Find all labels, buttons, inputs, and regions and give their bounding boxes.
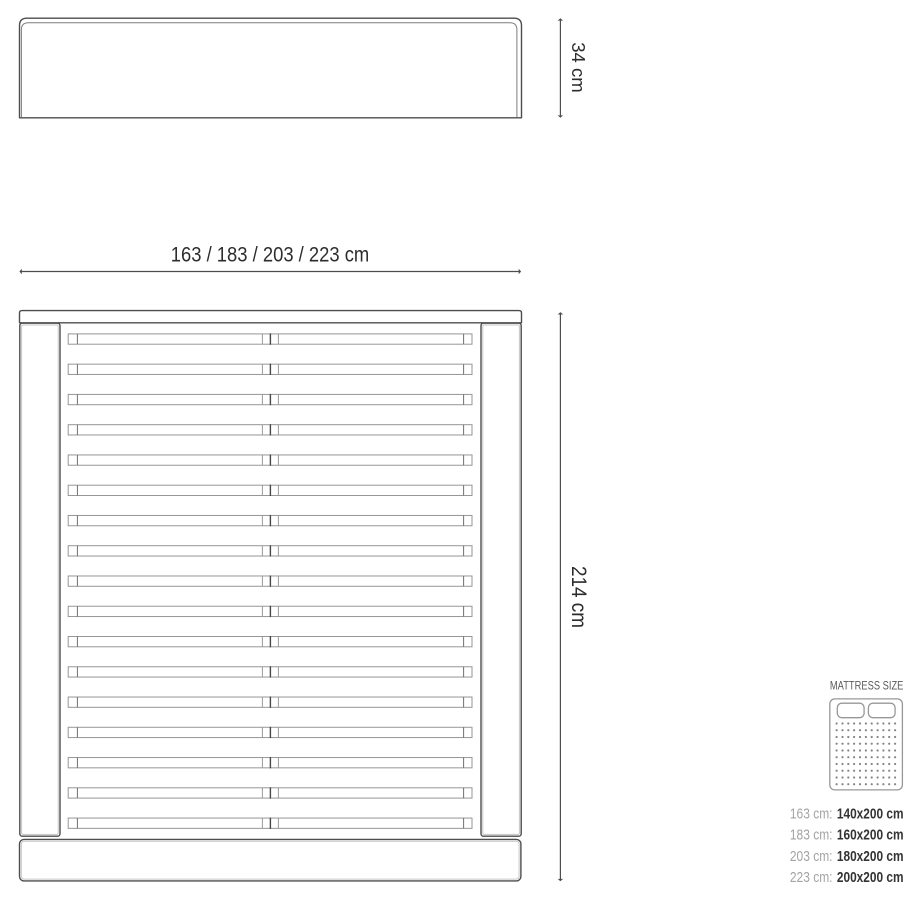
svg-text:MATTRESS SIZE: MATTRESS SIZE (830, 678, 904, 692)
svg-text:200x200 cm: 200x200 cm (837, 869, 904, 886)
svg-text:180x200 cm: 180x200 cm (837, 848, 904, 865)
svg-text:140x200 cm: 140x200 cm (837, 805, 904, 822)
svg-text:223 cm:: 223 cm: (790, 869, 833, 886)
svg-text:160x200 cm: 160x200 cm (837, 827, 904, 844)
svg-text:34 cm: 34 cm (568, 42, 588, 93)
svg-text:183 cm:: 183 cm: (790, 827, 833, 844)
svg-text:214 cm: 214 cm (567, 566, 591, 628)
svg-text:163 cm:: 163 cm: (790, 805, 833, 822)
svg-text:163 / 183 / 203 / 223 cm: 163 / 183 / 203 / 223 cm (171, 242, 370, 266)
svg-text:203 cm:: 203 cm: (790, 848, 833, 865)
